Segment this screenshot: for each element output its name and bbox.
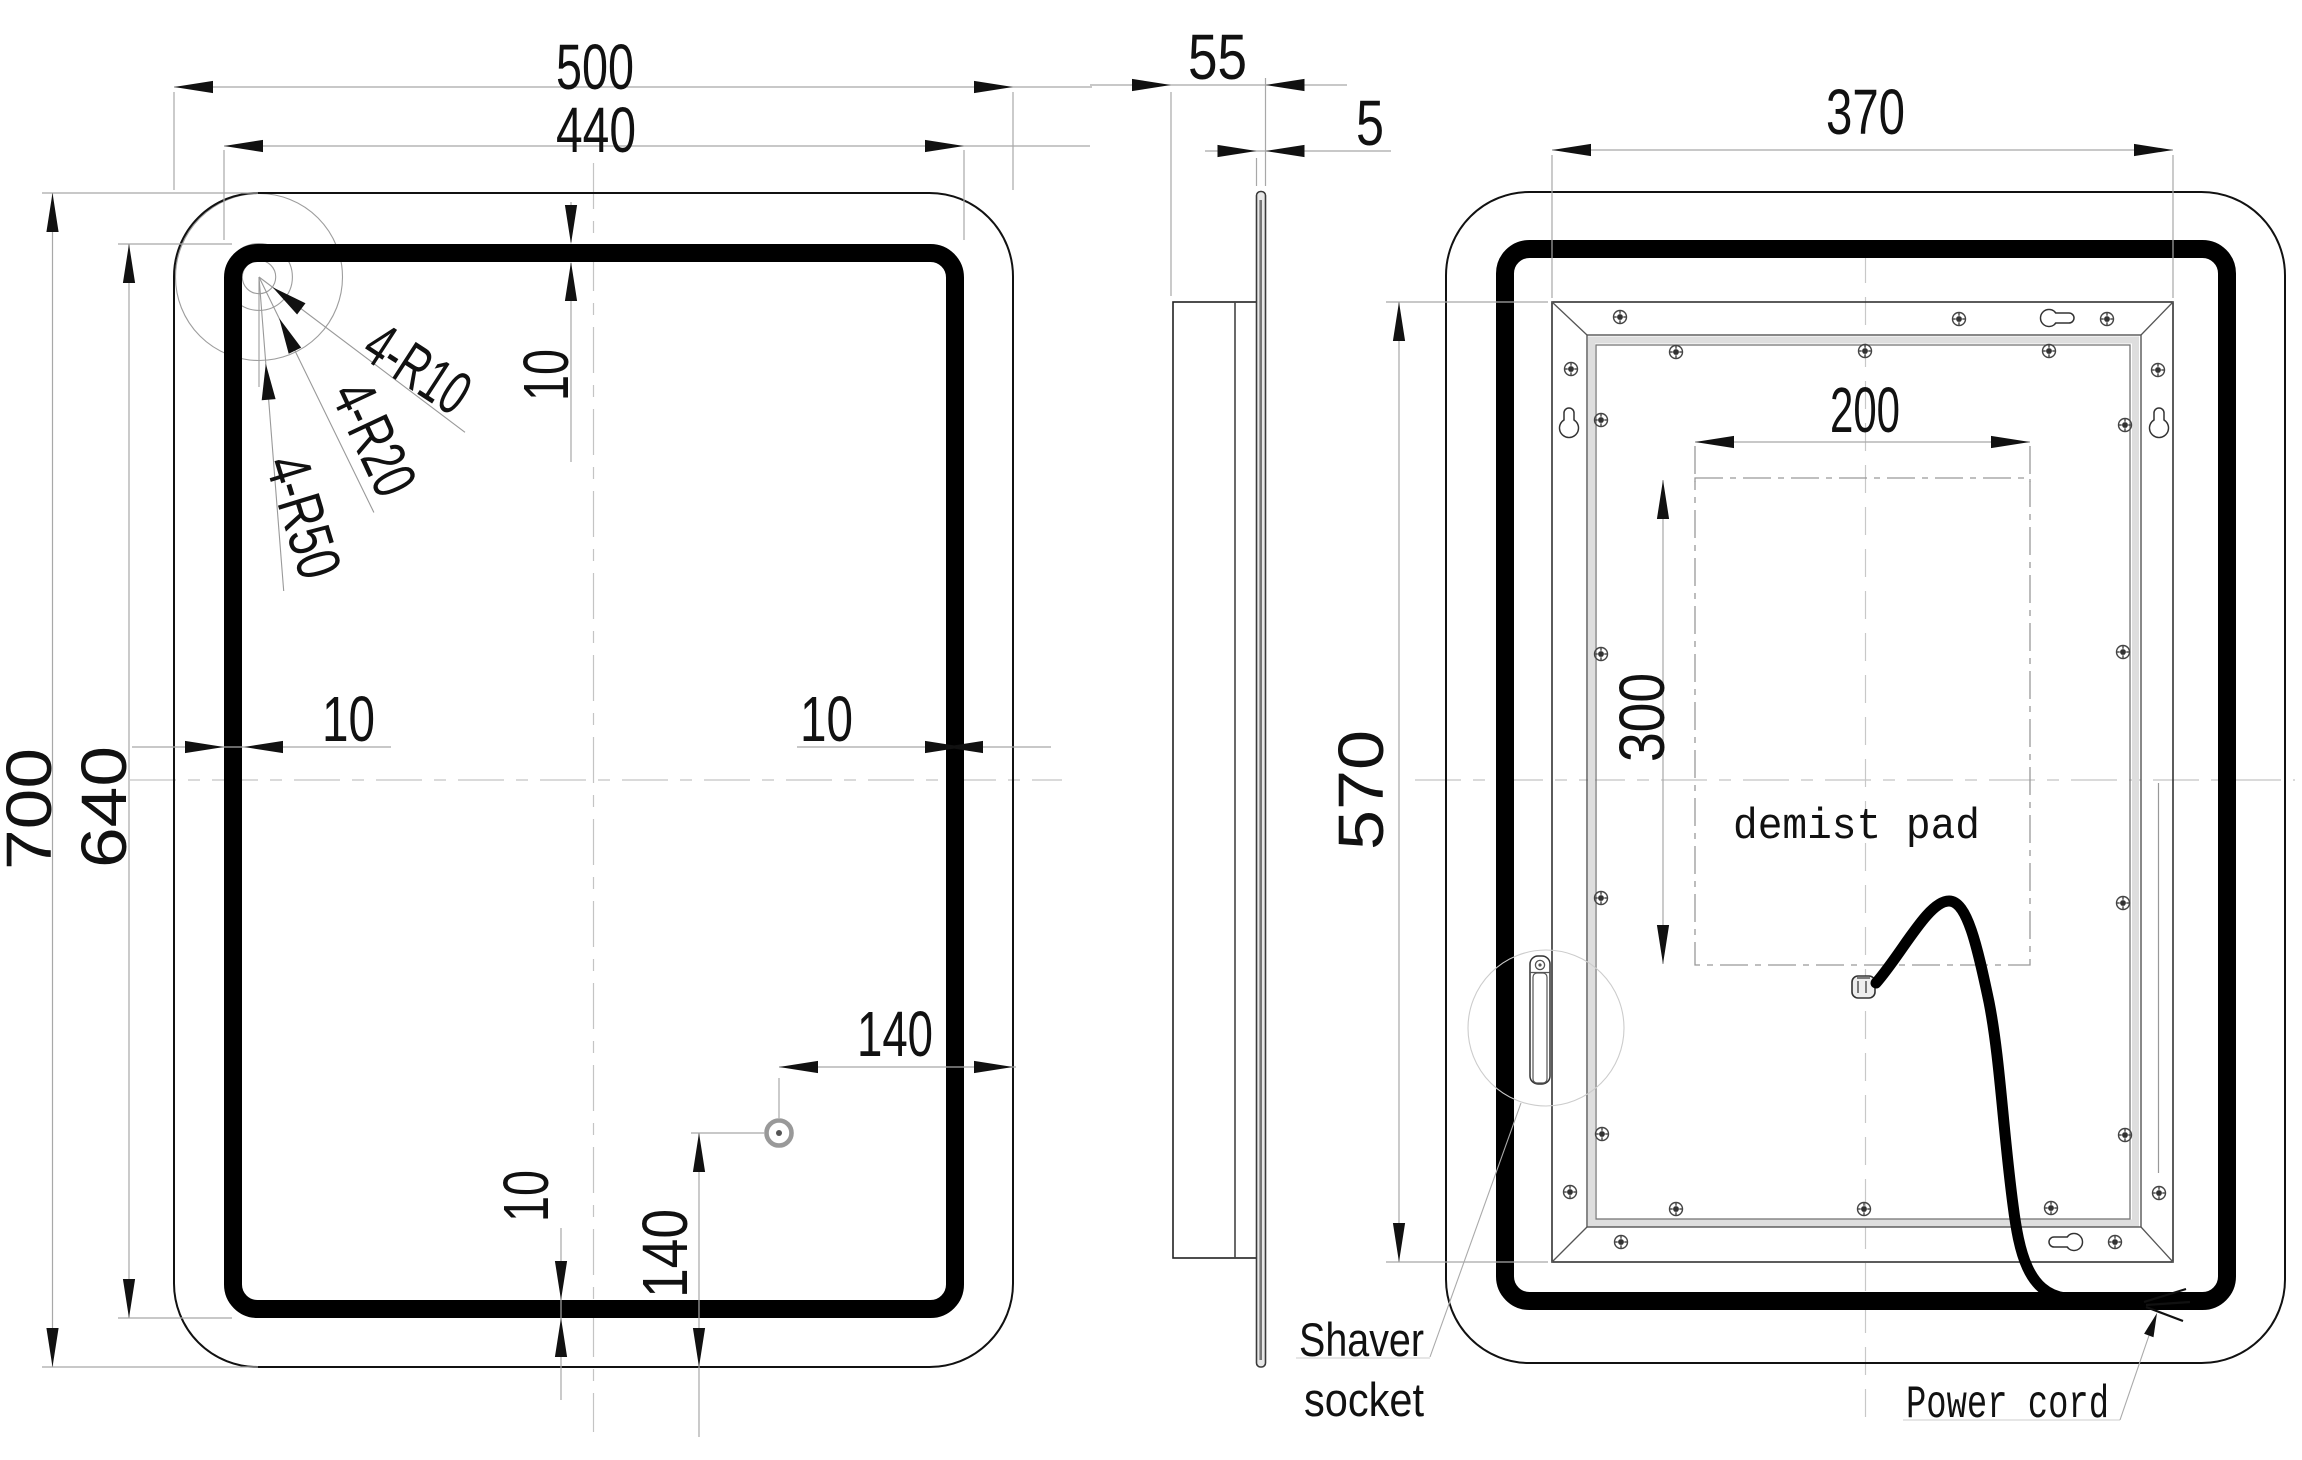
- svg-text:700: 700: [0, 748, 65, 870]
- svg-text:140: 140: [629, 1209, 701, 1298]
- svg-text:55: 55: [1188, 21, 1247, 93]
- svg-text:440: 440: [556, 94, 636, 166]
- svg-text:570: 570: [1325, 730, 1397, 850]
- svg-text:socket: socket: [1304, 1373, 1424, 1426]
- svg-text:10: 10: [322, 683, 375, 755]
- svg-text:Power cord: Power cord: [1906, 1379, 2109, 1431]
- svg-text:10: 10: [490, 1170, 562, 1222]
- svg-text:200: 200: [1830, 374, 1900, 446]
- svg-text:10: 10: [800, 683, 853, 755]
- svg-text:5: 5: [1356, 87, 1384, 159]
- svg-text:Shaver: Shaver: [1299, 1313, 1424, 1366]
- svg-text:demist pad: demist pad: [1733, 802, 1980, 852]
- svg-text:140: 140: [857, 998, 933, 1070]
- svg-text:300: 300: [1606, 673, 1678, 762]
- svg-text:500: 500: [556, 31, 634, 103]
- svg-text:10: 10: [510, 349, 582, 401]
- svg-text:640: 640: [68, 746, 140, 868]
- svg-text:370: 370: [1826, 76, 1905, 148]
